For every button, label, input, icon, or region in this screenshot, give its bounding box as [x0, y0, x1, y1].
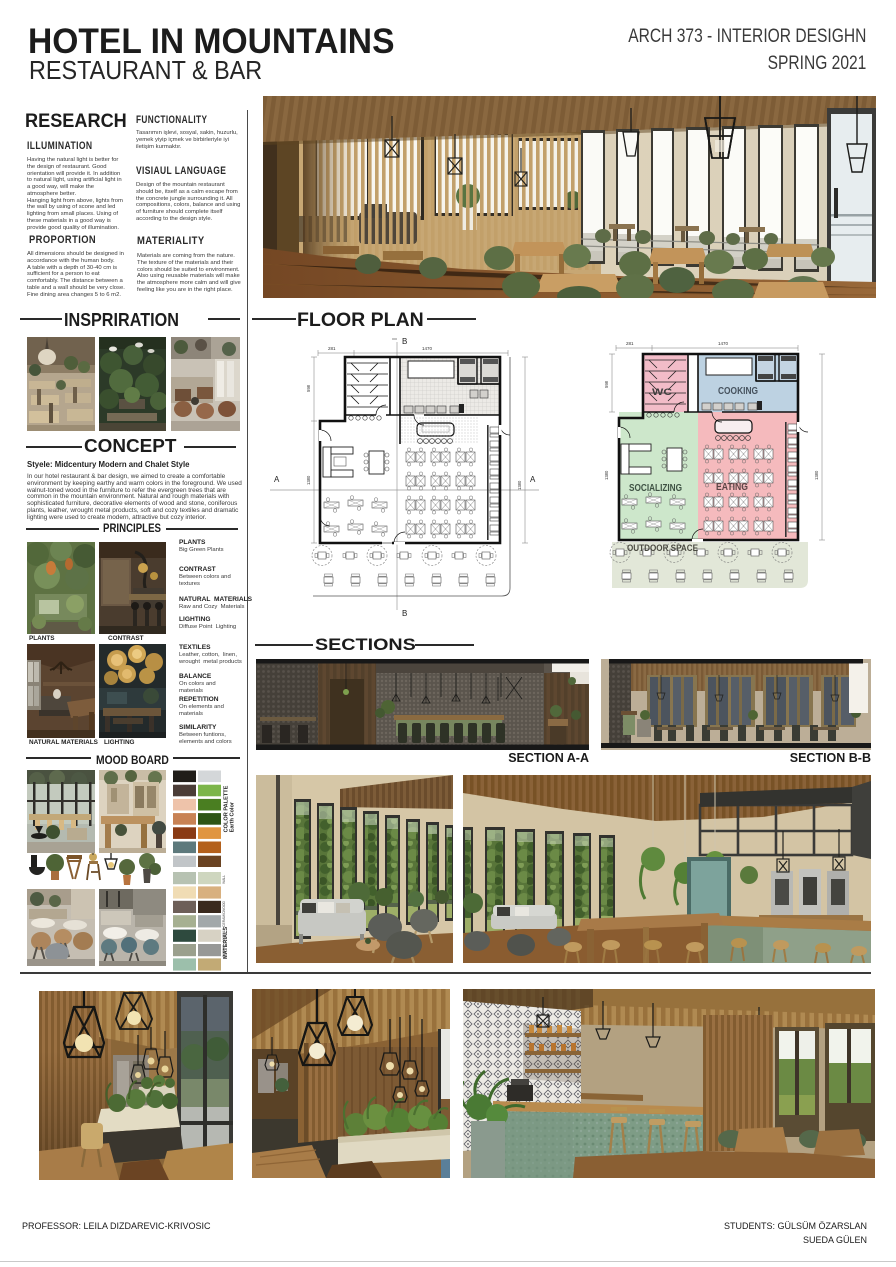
svg-text:598: 598	[604, 380, 609, 388]
svg-text:281: 281	[626, 341, 634, 346]
svg-text:WOOD: WOOD	[222, 901, 226, 912]
svg-text:281: 281	[328, 346, 336, 351]
svg-text:1380: 1380	[306, 475, 311, 485]
svg-text:CERAMIC: CERAMIC	[222, 911, 226, 927]
svg-text:1380: 1380	[517, 480, 522, 490]
svg-text:EATING: EATING	[716, 481, 748, 493]
svg-text:598: 598	[306, 384, 311, 392]
svg-text:A: A	[274, 475, 280, 484]
svg-text:MARBLE: MARBLE	[222, 927, 226, 942]
svg-text:A: A	[530, 475, 536, 484]
svg-text:WC: WC	[652, 387, 672, 398]
svg-text:FABRIC: FABRIC	[222, 944, 226, 957]
svg-text:COOKING: COOKING	[718, 386, 758, 397]
svg-text:1470: 1470	[422, 346, 433, 351]
svg-text:OUTDOOR SPACE: OUTDOOR SPACE	[627, 543, 698, 553]
svg-text:B: B	[402, 337, 407, 346]
svg-text:1470: 1470	[718, 341, 729, 346]
svg-text:B: B	[402, 609, 407, 618]
svg-text:WALL: WALL	[222, 875, 226, 884]
svg-text:1380: 1380	[604, 470, 609, 480]
svg-text:SOCIALIZING: SOCIALIZING	[629, 482, 682, 494]
svg-text:1380: 1380	[814, 470, 819, 480]
